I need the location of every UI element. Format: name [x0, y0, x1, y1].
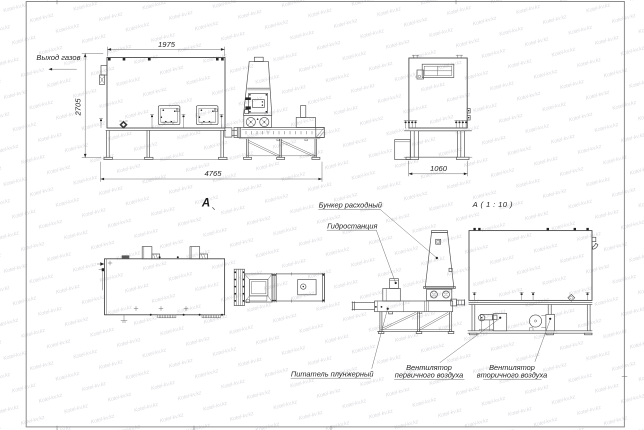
svg-text:Kotel-kv.kz: Kotel-kv.kz	[3, 89, 29, 101]
svg-text:Kotel-kv.kz: Kotel-kv.kz	[299, 149, 325, 161]
svg-text:Kotel-kv.kz: Kotel-kv.kz	[64, 316, 90, 328]
svg-text:Kotel-kv.kz: Kotel-kv.kz	[359, 115, 385, 127]
svg-text:Kotel-kv.kz: Kotel-kv.kz	[307, 355, 333, 367]
svg-text:Kotel-kv.kz: Kotel-kv.kz	[151, 293, 177, 305]
svg-text:Kotel-kv.kz: Kotel-kv.kz	[498, 287, 524, 299]
svg-text:Kotel-kv.kz: Kotel-kv.kz	[21, 328, 47, 340]
svg-text:Kotel-kv.kz: Kotel-kv.kz	[638, 23, 644, 35]
svg-text:Kotel-kv.kz: Kotel-kv.kz	[220, 205, 246, 217]
svg-text:Kotel-kv.kz: Kotel-kv.kz	[629, 426, 644, 430]
svg-text:Kotel-kv.kz: Kotel-kv.kz	[81, 33, 107, 45]
svg-text:Kotel-kv.kz: Kotel-kv.kz	[490, 341, 516, 353]
svg-text:Kotel-kv.kz: Kotel-kv.kz	[99, 98, 125, 110]
svg-text:Kotel-kv.kz: Kotel-kv.kz	[620, 393, 644, 405]
svg-text:Kotel-kv.kz: Kotel-kv.kz	[281, 171, 307, 183]
svg-text:Kotel-kv.kz: Kotel-kv.kz	[298, 410, 324, 422]
svg-text:Kotel-kv.kz: Kotel-kv.kz	[447, 179, 473, 191]
svg-text:Kotel-kv.kz: Kotel-kv.kz	[307, 94, 333, 106]
svg-text:Kotel-kv.kz: Kotel-kv.kz	[0, 372, 11, 384]
svg-text:Kotel-kv.kz: Kotel-kv.kz	[351, 343, 377, 355]
svg-text:Kotel-kv.kz: Kotel-kv.kz	[0, 317, 20, 329]
svg-text:Kotel-kv.kz: Kotel-kv.kz	[507, 319, 533, 331]
svg-text:Kotel-kv.kz: Kotel-kv.kz	[90, 239, 116, 251]
svg-text:Kotel-kv.kz: Kotel-kv.kz	[0, 0, 3, 4]
svg-text:Kotel-kv.kz: Kotel-kv.kz	[316, 40, 342, 52]
svg-text:Kotel-kv.kz: Kotel-kv.kz	[247, 302, 273, 314]
svg-text:Kotel-kv.kz: Kotel-kv.kz	[0, 111, 11, 123]
svg-text:Kotel-kv.kz: Kotel-kv.kz	[351, 170, 377, 182]
svg-text:Kotel-kv.kz: Kotel-kv.kz	[159, 412, 185, 424]
svg-text:Kotel-kv.kz: Kotel-kv.kz	[333, 18, 359, 30]
svg-text:Kotel-kv.kz: Kotel-kv.kz	[0, 404, 20, 416]
svg-text:Kotel-kv.kz: Kotel-kv.kz	[585, 89, 611, 101]
svg-text:Kotel-kv.kz: Kotel-kv.kz	[273, 399, 299, 411]
svg-text:Kotel-kv.kz: Kotel-kv.kz	[107, 218, 133, 230]
svg-text:Kotel-kv.kz: Kotel-kv.kz	[429, 201, 455, 213]
svg-text:Kotel-kv.kz: Kotel-kv.kz	[324, 159, 350, 171]
svg-text:Kotel-kv.kz: Kotel-kv.kz	[316, 301, 342, 313]
svg-text:Kotel-kv.kz: Kotel-kv.kz	[551, 394, 577, 406]
svg-text:Kotel-kv.kz: Kotel-kv.kz	[638, 197, 644, 209]
svg-text:Kotel-kv.kz: Kotel-kv.kz	[516, 91, 542, 103]
svg-text:Kotel-kv.kz: Kotel-kv.kz	[229, 324, 255, 336]
svg-text:Kotel-kv.kz: Kotel-kv.kz	[212, 346, 238, 358]
svg-text:Kotel-kv.kz: Kotel-kv.kz	[134, 402, 160, 414]
svg-text:Kotel-kv.kz: Kotel-kv.kz	[73, 348, 99, 360]
svg-text:Kotel-kv.kz: Kotel-kv.kz	[116, 337, 142, 349]
svg-text:Kotel-kv.kz: Kotel-kv.kz	[168, 97, 194, 109]
svg-text:Kotel-kv.kz: Kotel-kv.kz	[125, 21, 151, 33]
svg-text:Kotel-kv.kz: Kotel-kv.kz	[316, 388, 342, 400]
svg-text:Kotel-kv.kz: Kotel-kv.kz	[0, 198, 11, 210]
svg-text:Kotel-kv.kz: Kotel-kv.kz	[350, 83, 376, 95]
svg-text:Kotel-kv.kz: Kotel-kv.kz	[0, 165, 3, 177]
svg-text:Kotel-kv.kz: Kotel-kv.kz	[55, 197, 81, 209]
svg-text:Kotel-kv.kz: Kotel-kv.kz	[150, 380, 176, 392]
svg-text:Kotel-kv.kz: Kotel-kv.kz	[629, 0, 644, 3]
svg-text:Kotel-kv.kz: Kotel-kv.kz	[255, 247, 281, 259]
svg-text:Kotel-kv.kz: Kotel-kv.kz	[159, 64, 185, 76]
svg-text:Выход газов: Выход газов	[36, 53, 80, 62]
svg-text:Kotel-kv.kz: Kotel-kv.kz	[576, 231, 602, 243]
svg-text:Питатель плунжерный: Питатель плунжерный	[291, 369, 374, 378]
svg-text:Kotel-kv.kz: Kotel-kv.kz	[620, 45, 644, 57]
svg-text:Kotel-kv.kz: Kotel-kv.kz	[211, 259, 237, 271]
svg-text:Kotel-kv.kz: Kotel-kv.kz	[0, 426, 2, 430]
svg-text:Kotel-kv.kz: Kotel-kv.kz	[524, 210, 550, 222]
svg-text:Kotel-kv.kz: Kotel-kv.kz	[412, 397, 438, 409]
svg-text:Kotel-kv.kz: Kotel-kv.kz	[403, 16, 429, 28]
svg-text:Kotel-kv.kz: Kotel-kv.kz	[0, 79, 2, 91]
svg-text:Kotel-kv.kz: Kotel-kv.kz	[438, 146, 464, 158]
svg-text:Kotel-kv.kz: Kotel-kv.kz	[464, 418, 490, 430]
svg-text:Kotel-kv.kz: Kotel-kv.kz	[81, 120, 107, 132]
svg-text:Kotel-kv.kz: Kotel-kv.kz	[3, 350, 29, 362]
svg-text:Kotel-kv.kz: Kotel-kv.kz	[637, 110, 644, 122]
svg-text:Kotel-kv.kz: Kotel-kv.kz	[629, 252, 644, 264]
svg-text:Kotel-kv.kz: Kotel-kv.kz	[20, 415, 46, 427]
svg-text:Kotel-kv.kz: Kotel-kv.kz	[160, 325, 186, 337]
svg-text:Kotel-kv.kz: Kotel-kv.kz	[177, 390, 203, 402]
svg-text:Kotel-kv.kz: Kotel-kv.kz	[559, 166, 585, 178]
svg-text:Kotel-kv.kz: Kotel-kv.kz	[499, 26, 525, 38]
svg-text:Kotel-kv.kz: Kotel-kv.kz	[177, 129, 203, 141]
svg-text:Kotel-kv.kz: Kotel-kv.kz	[420, 81, 446, 93]
svg-text:Kotel-kv.kz: Kotel-kv.kz	[542, 275, 568, 287]
svg-text:Kotel-kv.kz: Kotel-kv.kz	[229, 237, 255, 249]
svg-text:Kotel-kv.kz: Kotel-kv.kz	[73, 1, 99, 13]
svg-text:Kotel-kv.kz: Kotel-kv.kz	[272, 312, 298, 324]
svg-text:Kotel-kv.kz: Kotel-kv.kz	[64, 142, 90, 154]
svg-text:Kotel-kv.kz: Kotel-kv.kz	[81, 294, 107, 306]
svg-text:Kotel-kv.kz: Kotel-kv.kz	[638, 371, 644, 383]
svg-text:Kotel-kv.kz: Kotel-kv.kz	[576, 405, 602, 417]
svg-text:Kotel-kv.kz: Kotel-kv.kz	[385, 39, 411, 51]
svg-text:Kotel-kv.kz: Kotel-kv.kz	[447, 5, 473, 17]
svg-text:Kotel-kv.kz: Kotel-kv.kz	[290, 203, 316, 215]
svg-text:Kotel-kv.kz: Kotel-kv.kz	[0, 56, 20, 68]
svg-text:Kotel-kv.kz: Kotel-kv.kz	[134, 54, 160, 66]
svg-text:Kotel-kv.kz: Kotel-kv.kz	[490, 254, 516, 266]
svg-text:Kotel-kv.kz: Kotel-kv.kz	[559, 0, 585, 4]
svg-text:Kotel-kv.kz: Kotel-kv.kz	[438, 320, 464, 332]
svg-text:Kotel-kv.kz: Kotel-kv.kz	[594, 296, 620, 308]
svg-text:Kotel-kv.kz: Kotel-kv.kz	[220, 31, 246, 43]
svg-text:Kotel-kv.kz: Kotel-kv.kz	[629, 339, 644, 351]
svg-text:Kotel-kv.kz: Kotel-kv.kz	[168, 184, 194, 196]
svg-text:Kotel-kv.kz: Kotel-kv.kz	[577, 144, 603, 156]
svg-text:Kotel-kv.kz: Kotel-kv.kz	[229, 63, 255, 75]
svg-text:Kotel-kv.kz: Kotel-kv.kz	[142, 173, 168, 185]
svg-text:Kotel-kv.kz: Kotel-kv.kz	[0, 143, 20, 155]
svg-text:Kotel-kv.kz: Kotel-kv.kz	[168, 358, 194, 370]
svg-text:Kotel-kv.kz: Kotel-kv.kz	[516, 264, 542, 276]
svg-text:Kotel-kv.kz: Kotel-kv.kz	[376, 6, 402, 18]
svg-text:1975: 1975	[158, 40, 176, 49]
svg-text:Kotel-kv.kz: Kotel-kv.kz	[255, 160, 281, 172]
svg-text:Kotel-kv.kz: Kotel-kv.kz	[342, 311, 368, 323]
svg-text:Kotel-kv.kz: Kotel-kv.kz	[429, 27, 455, 39]
svg-text:Kotel-kv.kz: Kotel-kv.kz	[0, 230, 20, 242]
svg-text:Kotel-kv.kz: Kotel-kv.kz	[290, 377, 316, 389]
svg-text:Kotel-kv.kz: Kotel-kv.kz	[290, 29, 316, 41]
svg-text:Kotel-kv.kz: Kotel-kv.kz	[21, 154, 47, 166]
svg-text:Kotel-kv.kz: Kotel-kv.kz	[420, 342, 446, 354]
svg-text:Kotel-kv.kz: Kotel-kv.kz	[473, 276, 499, 288]
svg-text:Kotel-kv.kz: Kotel-kv.kz	[524, 36, 550, 48]
svg-text:Kotel-kv.kz: Kotel-kv.kz	[12, 295, 38, 307]
svg-text:Гидростанция: Гидростанция	[327, 221, 377, 230]
svg-text:Kotel-kv.kz: Kotel-kv.kz	[107, 130, 133, 142]
svg-text:Kotel-kv.kz: Kotel-kv.kz	[455, 37, 481, 49]
svg-text:Kotel-kv.kz: Kotel-kv.kz	[255, 334, 281, 346]
svg-text:Kotel-kv.kz: Kotel-kv.kz	[298, 62, 324, 74]
svg-text:Kotel-kv.kz: Kotel-kv.kz	[368, 148, 394, 160]
svg-text:Kotel-kv.kz: Kotel-kv.kz	[168, 271, 194, 283]
svg-text:Kotel-kv.kz: Kotel-kv.kz	[264, 367, 290, 379]
svg-text:Kotel-kv.kz: Kotel-kv.kz	[586, 350, 612, 362]
svg-text:Kotel-kv.kz: Kotel-kv.kz	[290, 116, 316, 128]
svg-text:Kotel-kv.kz: Kotel-kv.kz	[29, 12, 55, 24]
svg-text:Kotel-kv.kz: Kotel-kv.kz	[403, 277, 429, 289]
svg-text:Kotel-kv.kz: Kotel-kv.kz	[246, 41, 272, 53]
svg-text:Kotel-kv.kz: Kotel-kv.kz	[3, 263, 29, 275]
svg-text:Kotel-kv.kz: Kotel-kv.kz	[142, 347, 168, 359]
svg-text:Kotel-kv.kz: Kotel-kv.kz	[168, 10, 194, 22]
svg-text:Kotel-kv.kz: Kotel-kv.kz	[107, 391, 133, 403]
svg-text:Kotel-kv.kz: Kotel-kv.kz	[124, 109, 150, 121]
svg-text:Kotel-kv.kz: Kotel-kv.kz	[586, 176, 612, 188]
svg-text:Kotel-kv.kz: Kotel-kv.kz	[3, 2, 29, 14]
svg-text:Kotel-kv.kz: Kotel-kv.kz	[437, 233, 463, 245]
svg-text:Kotel-kv.kz: Kotel-kv.kz	[0, 252, 2, 264]
svg-text:Kotel-kv.kz: Kotel-kv.kz	[307, 7, 333, 19]
svg-text:Kotel-kv.kz: Kotel-kv.kz	[568, 24, 594, 36]
svg-text:Kotel-kv.kz: Kotel-kv.kz	[264, 19, 290, 31]
svg-text:Kotel-kv.kz: Kotel-kv.kz	[568, 198, 594, 210]
svg-text:Kotel-kv.kz: Kotel-kv.kz	[594, 209, 620, 221]
svg-text:Kotel-kv.kz: Kotel-kv.kz	[134, 228, 160, 240]
svg-text:Kotel-kv.kz: Kotel-kv.kz	[437, 59, 463, 71]
svg-text:Kotel-kv.kz: Kotel-kv.kz	[568, 285, 594, 297]
svg-text:Kotel-kv.kz: Kotel-kv.kz	[11, 34, 37, 46]
svg-text:Kotel-kv.kz: Kotel-kv.kz	[386, 125, 412, 137]
svg-text:Kotel-kv.kz: Kotel-kv.kz	[507, 406, 533, 418]
svg-text:Kotel-kv.kz: Kotel-kv.kz	[229, 150, 255, 162]
svg-text:Kotel-kv.kz: Kotel-kv.kz	[194, 20, 220, 32]
svg-text:Kotel-kv.kz: Kotel-kv.kz	[20, 67, 46, 79]
svg-text:вторичного воздуха: вторичного воздуха	[477, 371, 547, 380]
svg-text:Kotel-kv.kz: Kotel-kv.kz	[255, 421, 281, 430]
svg-text:Kotel-kv.kz: Kotel-kv.kz	[0, 339, 3, 351]
svg-text:Kotel-kv.kz: Kotel-kv.kz	[125, 369, 151, 381]
svg-text:Kotel-kv.kz: Kotel-kv.kz	[238, 95, 264, 107]
svg-text:Kotel-kv.kz: Kotel-kv.kz	[142, 86, 168, 98]
svg-text:Kotel-kv.kz: Kotel-kv.kz	[150, 206, 176, 218]
svg-text:Kotel-kv.kz: Kotel-kv.kz	[281, 258, 307, 270]
svg-text:Kotel-kv.kz: Kotel-kv.kz	[560, 253, 586, 265]
svg-text:Kotel-kv.kz: Kotel-kv.kz	[159, 238, 185, 250]
svg-text:Kotel-kv.kz: Kotel-kv.kz	[411, 136, 437, 148]
svg-text:Kotel-kv.kz: Kotel-kv.kz	[594, 383, 620, 395]
svg-text:Kotel-kv.kz: Kotel-kv.kz	[124, 282, 150, 294]
svg-text:Kotel-kv.kz: Kotel-kv.kz	[446, 266, 472, 278]
svg-text:Kotel-kv.kz: Kotel-kv.kz	[481, 48, 507, 60]
svg-text:Kotel-kv.kz: Kotel-kv.kz	[472, 15, 498, 27]
svg-text:Kotel-kv.kz: Kotel-kv.kz	[290, 290, 316, 302]
svg-text:Kotel-kv.kz: Kotel-kv.kz	[629, 78, 644, 90]
svg-text:Kotel-kv.kz: Kotel-kv.kz	[333, 105, 359, 117]
svg-text:Kotel-kv.kz: Kotel-kv.kz	[568, 111, 594, 123]
svg-text:Kotel-kv.kz: Kotel-kv.kz	[507, 58, 533, 70]
svg-text:Kotel-kv.kz: Kotel-kv.kz	[273, 51, 299, 63]
svg-text:Kotel-kv.kz: Kotel-kv.kz	[307, 181, 333, 193]
svg-text:Kotel-kv.kz: Kotel-kv.kz	[237, 357, 263, 369]
svg-text:Kotel-kv.kz: Kotel-kv.kz	[186, 75, 212, 87]
svg-text:Kotel-kv.kz: Kotel-kv.kz	[629, 165, 644, 177]
svg-text:Kotel-kv.kz: Kotel-kv.kz	[542, 101, 568, 113]
svg-text:Kotel-kv.kz: Kotel-kv.kz	[403, 104, 429, 116]
svg-text:Kotel-kv.kz: Kotel-kv.kz	[342, 398, 368, 410]
svg-text:Kotel-kv.kz: Kotel-kv.kz	[420, 255, 446, 267]
svg-text:Kotel-kv.kz: Kotel-kv.kz	[481, 396, 507, 408]
svg-text:Kotel-kv.kz: Kotel-kv.kz	[55, 23, 81, 35]
svg-text:Kotel-kv.kz: Kotel-kv.kz	[47, 425, 73, 430]
svg-text:Kotel-kv.kz: Kotel-kv.kz	[585, 263, 611, 275]
svg-text:Kotel-kv.kz: Kotel-kv.kz	[220, 292, 246, 304]
svg-text:Kotel-kv.kz: Kotel-kv.kz	[125, 195, 151, 207]
svg-text:Kotel-kv.kz: Kotel-kv.kz	[594, 35, 620, 47]
svg-text:Kotel-kv.kz: Kotel-kv.kz	[99, 272, 125, 284]
svg-text:Kotel-kv.kz: Kotel-kv.kz	[90, 327, 116, 339]
svg-text:Kotel-kv.kz: Kotel-kv.kz	[281, 345, 307, 357]
svg-text:Kotel-kv.kz: Kotel-kv.kz	[203, 140, 229, 152]
svg-text:Kotel-kv.kz: Kotel-kv.kz	[377, 354, 403, 366]
svg-text:Kotel-kv.kz: Kotel-kv.kz	[47, 251, 73, 263]
svg-text:Kotel-kv.kz: Kotel-kv.kz	[446, 92, 472, 104]
svg-text:Kotel-kv.kz: Kotel-kv.kz	[73, 175, 99, 187]
svg-text:Kotel-kv.kz: Kotel-kv.kz	[90, 153, 116, 165]
svg-text:Kotel-kv.kz: Kotel-kv.kz	[177, 303, 203, 315]
svg-text:Kotel-kv.kz: Kotel-kv.kz	[516, 178, 542, 190]
svg-text:Kotel-kv.kz: Kotel-kv.kz	[325, 72, 351, 84]
svg-text:Kotel-kv.kz: Kotel-kv.kz	[412, 223, 438, 235]
svg-text:Kotel-kv.kz: Kotel-kv.kz	[98, 185, 124, 197]
svg-text:Kotel-kv.kz: Kotel-kv.kz	[177, 42, 203, 54]
svg-text:Kotel-kv.kz: Kotel-kv.kz	[533, 69, 559, 81]
svg-text:Kotel-kv.kz: Kotel-kv.kz	[342, 137, 368, 149]
svg-text:Kotel-kv.kz: Kotel-kv.kz	[11, 382, 37, 394]
svg-text:Бункер расходный: Бункер расходный	[319, 201, 382, 210]
svg-text:Kotel-kv.kz: Kotel-kv.kz	[385, 213, 411, 225]
svg-text:Kotel-kv.kz: Kotel-kv.kz	[247, 128, 273, 140]
svg-text:Kotel-kv.kz: Kotel-kv.kz	[55, 284, 81, 296]
svg-text:Kotel-kv.kz: Kotel-kv.kz	[81, 381, 107, 393]
svg-text:Kotel-kv.kz: Kotel-kv.kz	[350, 257, 376, 269]
svg-text:Kotel-kv.kz: Kotel-kv.kz	[246, 389, 272, 401]
svg-text:Kotel-kv.kz: Kotel-kv.kz	[298, 236, 324, 248]
svg-text:Kotel-kv.kz: Kotel-kv.kz	[473, 102, 499, 114]
svg-text:Kotel-kv.kz: Kotel-kv.kz	[394, 245, 420, 257]
svg-text:Kotel-kv.kz: Kotel-kv.kz	[29, 360, 55, 372]
svg-text:Kotel-kv.kz: Kotel-kv.kz	[342, 50, 368, 62]
svg-text:Kotel-kv.kz: Kotel-kv.kz	[272, 138, 298, 150]
svg-text:А ( 1 : 10 ): А ( 1 : 10 )	[472, 200, 513, 209]
svg-text:Kotel-kv.kz: Kotel-kv.kz	[177, 216, 203, 228]
svg-text:Kotel-kv.kz: Kotel-kv.kz	[334, 279, 360, 291]
svg-text:Kotel-kv.kz: Kotel-kv.kz	[37, 132, 63, 144]
svg-text:Kotel-kv.kz: Kotel-kv.kz	[490, 167, 516, 179]
svg-text:Kotel-kv.kz: Kotel-kv.kz	[507, 232, 533, 244]
svg-text:Kotel-kv.kz: Kotel-kv.kz	[455, 385, 481, 397]
svg-text:Kotel-kv.kz: Kotel-kv.kz	[55, 371, 81, 383]
svg-text:Kotel-kv.kz: Kotel-kv.kz	[38, 393, 64, 405]
svg-text:Kotel-kv.kz: Kotel-kv.kz	[377, 267, 403, 279]
svg-text:Kotel-kv.kz: Kotel-kv.kz	[211, 85, 237, 97]
svg-text:Kotel-kv.kz: Kotel-kv.kz	[0, 24, 11, 36]
svg-text:Kotel-kv.kz: Kotel-kv.kz	[64, 229, 90, 241]
svg-text:Kotel-kv.kz: Kotel-kv.kz	[98, 11, 124, 23]
svg-text:Kotel-kv.kz: Kotel-kv.kz	[37, 306, 63, 318]
svg-text:Kotel-kv.kz: Kotel-kv.kz	[237, 9, 263, 21]
svg-text:Kotel-kv.kz: Kotel-kv.kz	[81, 207, 107, 219]
svg-text:Kotel-kv.kz: Kotel-kv.kz	[29, 186, 55, 198]
svg-text:Kotel-kv.kz: Kotel-kv.kz	[325, 246, 351, 258]
svg-text:Kotel-kv.kz: Kotel-kv.kz	[72, 262, 98, 274]
svg-text:2705: 2705	[74, 98, 83, 117]
svg-text:Kotel-kv.kz: Kotel-kv.kz	[368, 408, 394, 420]
svg-text:Kotel-kv.kz: Kotel-kv.kz	[464, 244, 490, 256]
svg-text:Kotel-kv.kz: Kotel-kv.kz	[246, 215, 272, 227]
svg-text:Kotel-kv.kz: Kotel-kv.kz	[463, 331, 489, 343]
svg-text:Kotel-kv.kz: Kotel-kv.kz	[29, 273, 55, 285]
svg-text:Kotel-kv.kz: Kotel-kv.kz	[516, 4, 542, 16]
svg-text:Kotel-kv.kz: Kotel-kv.kz	[221, 378, 247, 390]
svg-text:Kotel-kv.kz: Kotel-kv.kz	[533, 243, 559, 255]
svg-text:Kotel-kv.kz: Kotel-kv.kz	[46, 164, 72, 176]
svg-text:Kotel-kv.kz: Kotel-kv.kz	[307, 268, 333, 280]
svg-text:Kotel-kv.kz: Kotel-kv.kz	[490, 0, 516, 5]
svg-text:Kotel-kv.kz: Kotel-kv.kz	[542, 14, 568, 26]
svg-text:Kotel-kv.kz: Kotel-kv.kz	[185, 336, 211, 348]
svg-text:Kotel-kv.kz: Kotel-kv.kz	[194, 281, 220, 293]
svg-text:Kotel-kv.kz: Kotel-kv.kz	[3, 176, 29, 188]
svg-text:Kotel-kv.kz: Kotel-kv.kz	[481, 135, 507, 147]
svg-text:Kotel-kv.kz: Kotel-kv.kz	[376, 180, 402, 192]
svg-text:Kotel-kv.kz: Kotel-kv.kz	[12, 121, 38, 133]
svg-text:Kotel-kv.kz: Kotel-kv.kz	[577, 318, 603, 330]
svg-text:Kotel-kv.kz: Kotel-kv.kz	[194, 368, 220, 380]
svg-text:1060: 1060	[430, 164, 448, 173]
svg-text:Kotel-kv.kz: Kotel-kv.kz	[20, 241, 46, 253]
svg-text:Kotel-kv.kz: Kotel-kv.kz	[368, 322, 394, 334]
svg-text:Kotel-kv.kz: Kotel-kv.kz	[133, 141, 159, 153]
svg-text:Kotel-kv.kz: Kotel-kv.kz	[576, 57, 602, 69]
svg-text:Kotel-kv.kz: Kotel-kv.kz	[560, 79, 586, 91]
svg-text:А: А	[201, 198, 210, 210]
svg-text:Kotel-kv.kz: Kotel-kv.kz	[29, 99, 55, 111]
svg-text:Kotel-kv.kz: Kotel-kv.kz	[533, 155, 559, 167]
svg-text:Kotel-kv.kz: Kotel-kv.kz	[64, 403, 90, 415]
svg-text:Kotel-kv.kz: Kotel-kv.kz	[116, 76, 142, 88]
svg-text:Kotel-kv.kz: Kotel-kv.kz	[403, 190, 429, 202]
svg-text:Kotel-kv.kz: Kotel-kv.kz	[142, 260, 168, 272]
svg-text:Kotel-kv.kz: Kotel-kv.kz	[186, 423, 212, 430]
svg-text:Kotel-kv.kz: Kotel-kv.kz	[594, 122, 620, 134]
svg-text:Kotel-kv.kz: Kotel-kv.kz	[550, 134, 576, 146]
svg-text:Kotel-kv.kz: Kotel-kv.kz	[559, 340, 585, 352]
svg-text:первичного воздуха: первичного воздуха	[395, 371, 463, 380]
svg-text:Kotel-kv.kz: Kotel-kv.kz	[324, 333, 350, 345]
svg-text:Kotel-kv.kz: Kotel-kv.kz	[264, 193, 290, 205]
svg-text:Kotel-kv.kz: Kotel-kv.kz	[90, 66, 116, 78]
svg-text:Kotel-kv.kz: Kotel-kv.kz	[359, 289, 385, 301]
svg-text:Kotel-kv.kz: Kotel-kv.kz	[551, 46, 577, 58]
svg-text:Kotel-kv.kz: Kotel-kv.kz	[360, 28, 386, 40]
svg-text:Kotel-kv.kz: Kotel-kv.kz	[542, 188, 568, 200]
svg-text:Kotel-kv.kz: Kotel-kv.kz	[237, 183, 263, 195]
svg-text:Kotel-kv.kz: Kotel-kv.kz	[394, 419, 420, 430]
svg-text:Kotel-kv.kz: Kotel-kv.kz	[98, 359, 124, 371]
svg-text:Kotel-kv.kz: Kotel-kv.kz	[489, 80, 515, 92]
svg-text:Kotel-kv.kz: Kotel-kv.kz	[637, 284, 644, 296]
svg-text:Kotel-kv.kz: Kotel-kv.kz	[368, 61, 394, 73]
svg-text:Kotel-kv.kz: Kotel-kv.kz	[464, 70, 490, 82]
svg-text:Kotel-kv.kz: Kotel-kv.kz	[455, 211, 481, 223]
svg-text:Kotel-kv.kz: Kotel-kv.kz	[325, 420, 351, 430]
svg-text:Kotel-kv.kz: Kotel-kv.kz	[116, 163, 142, 175]
svg-text:Kotel-kv.kz: Kotel-kv.kz	[273, 225, 299, 237]
